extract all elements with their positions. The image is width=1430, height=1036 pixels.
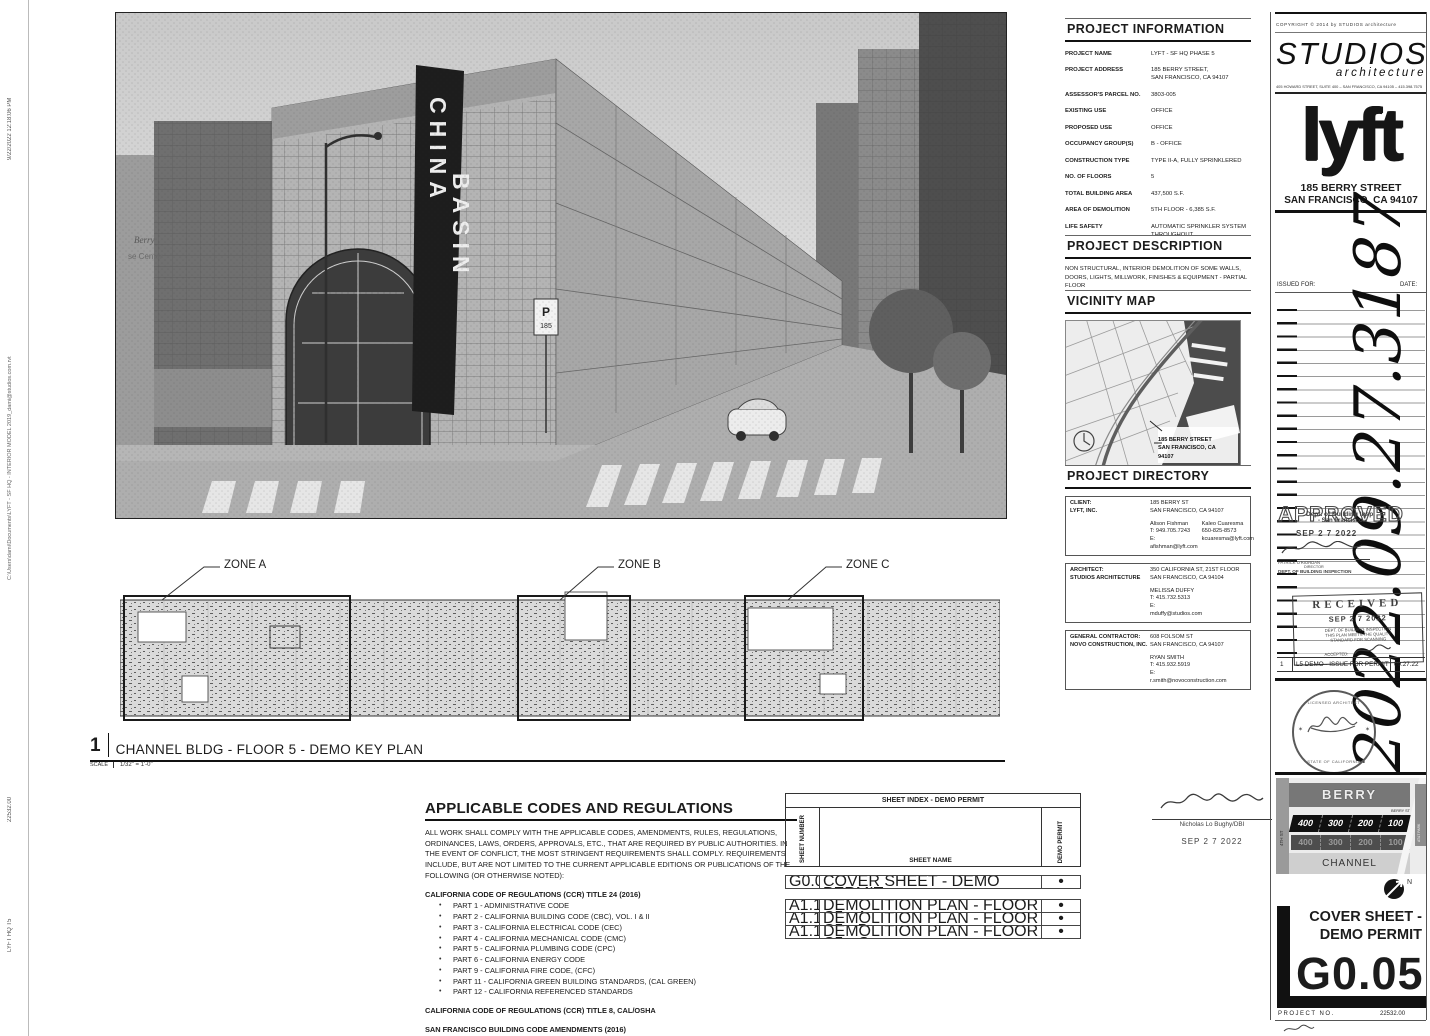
directory-firm: STUDIOS ARCHITECTURE [1070,575,1140,581]
cell-sheet-number: A1.15C [786,926,820,938]
key-plan-divider [108,733,109,757]
architect-seal: LICENSED ARCHITECT ✶ ✶ STATE OF CALIFORN… [1292,690,1376,774]
seal-top-text: LICENSED ARCHITECT [1294,700,1374,705]
info-label: PROPOSED USE [1065,125,1147,133]
info-value: B - OFFICE [1151,141,1251,149]
cell-sheet-name: DEMOLITION PLAN - FLOOR C5 - C [820,926,1042,938]
signature-scribble [1157,792,1267,814]
block-400: 400 [1289,815,1323,832]
block-300: 300 [1321,835,1351,850]
edge-divider [28,0,29,1036]
vicinity-map-section: VICINITY MAP [1065,290,1251,466]
approved-signature-scribble [1278,541,1368,557]
info-label: EXISTING USE [1065,108,1147,116]
seal-star-left: ✶ [1298,726,1303,733]
studios-logo: STUDIOS architecture [1276,38,1426,79]
site-photo: CHINA BASIN [115,12,1007,519]
sheet-index-row: A1.15B DEMOLITION PLAN - FLOOR C5 - B • [785,913,1081,926]
handwritten-permit-number: 2022.09.27.3187 [1342,228,1416,774]
info-value: 5 [1151,174,1251,182]
sheet-number: G0.05 [1296,948,1422,1000]
north-arrow: N [1382,876,1412,902]
park-label: AT&T PARK [1417,790,1421,842]
block-400: 400 [1291,835,1321,850]
project-description-title: PROJECT DESCRIPTION [1065,235,1251,259]
copyright-rule [1275,32,1426,33]
seal-signature-scribble [1305,716,1361,738]
cell-sheet-number: A1.15A [786,900,820,912]
issued-for-label: ISSUED FOR: [1277,282,1315,288]
info-label: CONSTRUCTION TYPE [1065,158,1147,166]
info-label: ASSESSOR'S PARCEL NO. [1065,92,1147,100]
sheet-index-row: G0.05 COVER SHEET - DEMO PERMIT • [785,875,1081,889]
sheet-index-header: SHEET INDEX - DEMO PERMIT SHEET NUMBER S… [785,793,1081,867]
title-block-top-rule [1275,12,1426,14]
list-item: PART 1 - ADMINISTRATIVE CODE [439,901,797,912]
edge-project-number: 22532.00 [7,762,13,822]
directory-contact: Alison Fishman T: 949.705.7243 E: afishm… [1150,521,1198,552]
list-item: PART 9 - CALIFORNIA FIRE CODE, (CFC) [439,966,797,977]
dbi-reviewer-date: SEP 2 7 2022 [1152,837,1272,846]
fourth-street-band: 4TH ST [1276,778,1289,874]
directory-address: 608 FOLSOM ST SAN FRANCISCO, CA 94107 [1150,634,1246,650]
info-label: TOTAL BUILDING AREA [1065,191,1147,199]
info-value: 437,500 S.F. [1151,191,1251,199]
cell-demo-dot: • [1042,913,1080,925]
cell-demo-dot: • [1042,926,1080,938]
vicinity-map-title: VICINITY MAP [1065,290,1251,314]
vicinity-map-callout: 185 BERRY STREET SAN FRANCISCO, CA 94107 [1158,436,1236,461]
info-value: OFFICE [1151,108,1251,116]
zone-a-label: ZONE A [224,559,266,571]
copyright-line: COPYRIGHT © 2014 by STUDIOS architecture [1276,22,1426,27]
info-value: 5TH FLOOR - 6,385 S.F. [1151,207,1251,215]
info-label: OCCUPANCY GROUP(S) [1065,141,1147,149]
project-description-section: PROJECT DESCRIPTION NON STRUCTURAL, INTE… [1065,235,1251,291]
col-sheet-name: SHEET NAME [820,808,1042,866]
project-information-section: PROJECT INFORMATION PROJECT NAMELYFT - S… [1065,18,1251,248]
edge-file-path: C:\Users\dami\Documents\LYFT - SF HQ - I… [7,250,13,580]
approved-date: SEP 2 7 2022 [1296,529,1408,538]
project-directory-section: PROJECT DIRECTORY CLIENT:LYFT, INC. 185 … [1065,465,1251,697]
info-value: OFFICE [1151,125,1251,133]
info-row: TOTAL BUILDING AREA437,500 S.F. [1065,191,1251,199]
col-demo-permit-label: DEMO PERMIT [1058,821,1064,863]
col-sheet-number: SHEET NUMBER [786,808,820,866]
title-block-left-border [1270,12,1271,1020]
list-item: PART 4 - CALIFORNIA MECHANICAL CODE (CMC… [439,934,797,945]
list-item: PART 3 - CALIFORNIA ELECTRICAL CODE (CEC… [439,923,797,934]
received-stamp: RECEIVED SEP 2 7 2022 DEPT. OF BUILDING … [1292,592,1424,665]
info-row: AREA OF DEMOLITION5TH FLOOR - 6,385 S.F. [1065,207,1251,215]
project-information-title: PROJECT INFORMATION [1065,18,1251,42]
info-label: PROJECT ADDRESS [1065,67,1147,83]
lyft-logo: lyft [1276,96,1426,174]
sheet-title: COVER SHEET - DEMO PERMIT [1296,908,1422,944]
title-block-right-border [1426,12,1427,1020]
fourth-street-label: 4TH ST [1279,806,1284,846]
ccr8-heading: CALIFORNIA CODE OF REGULATIONS (CCR) TIT… [425,1006,797,1017]
block-300: 300 [1319,815,1353,832]
cell-demo-dot: • [1042,876,1080,888]
zone-c-label: ZONE C [846,559,889,571]
info-row: EXISTING USEOFFICE [1065,108,1251,116]
sf-amendments-heading: SAN FRANCISCO BUILDING CODE AMENDMENTS (… [425,1025,797,1036]
list-item: PART 12 - CALIFORNIA REFERENCED STANDARD… [439,987,797,998]
revision-description: L5 DEMO - ISSUE FOR PERMIT [1293,658,1391,671]
studios-address: 405 HOWARD STREET, SUITE 400 – SAN FRANC… [1276,84,1426,89]
col-demo-permit: DEMO PERMIT [1042,808,1080,866]
ccr24-heading: CALIFORNIA CODE OF REGULATIONS (CCR) TIT… [425,890,797,901]
sheet-index: SHEET INDEX - DEMO PERMIT SHEET NUMBER S… [785,793,1081,939]
cell-sheet-name: DEMOLITION PLAN - FLOOR C5 - A [820,900,1042,912]
approved-stamp: APPROVED Dept. of Building Insp. - San F… [1278,503,1408,574]
received-signature-scribble [1353,644,1393,657]
directory-role: CLIENT: [1070,500,1091,506]
north-letter: N [1407,879,1412,886]
info-row: PROJECT NAMELYFT - SF HQ PHASE 5 [1065,51,1251,59]
directory-entry-client: CLIENT:LYFT, INC. 185 BERRY ST SAN FRANC… [1065,496,1251,556]
directory-contact [1206,588,1246,619]
info-value: LYFT - SF HQ PHASE 5 [1151,51,1251,59]
info-row: PROPOSED USEOFFICE [1065,125,1251,133]
directory-address: 185 BERRY ST SAN FRANCISCO, CA 94107 [1150,500,1246,516]
ccr24-list: PART 1 - ADMINISTRATIVE CODE PART 2 - CA… [439,901,797,998]
info-value: 185 BERRY STREET, SAN FRANCISCO, CA 9410… [1151,67,1251,83]
col-sheet-name-label: SHEET NAME [820,857,1041,864]
project-directory-title: PROJECT DIRECTORY [1065,465,1251,489]
directory-contact: MELISSA DUFFY T: 415.732.5313 E: mduffy@… [1150,588,1202,619]
dbi-reviewer-name: Nicholas Lo Bughy/DBI [1152,819,1272,828]
north-arrow-icon: N [1382,876,1412,902]
info-label: NO. OF FLOORS [1065,174,1147,182]
key-plan-title: CHANNEL BLDG - FLOOR 5 - DEMO KEY PLAN [116,742,424,757]
cell-sheet-number: A1.15B [786,913,820,925]
directory-role: ARCHITECT: [1070,567,1104,573]
approved-dept: DEPT. OF BUILDING INSPECTION [1278,569,1408,574]
received-date: SEP 2 7 2022 [1298,612,1418,624]
revision-bottom-rule [1275,678,1426,681]
dbi-reviewer-signature: Nicholas Lo Bughy/DBI SEP 2 7 2022 [1152,792,1272,846]
cell-sheet-name: COVER SHEET - DEMO PERMIT [820,876,1042,888]
project-no-value: 22532.00 [1380,1011,1405,1017]
project-description-body: NON STRUCTURAL, INTERIOR DEMOLITION OF S… [1065,265,1251,291]
seal-bottom-text: STATE OF CALIFORNIA [1294,759,1374,764]
directory-firm: LYFT, INC. [1070,508,1097,514]
list-item: PART 2 - CALIFORNIA BUILDING CODE (CBC),… [439,912,797,923]
location-key-map: 4TH ST BERRY BERRY ST 400 300 200 100 40… [1276,778,1426,874]
seal-bottom-rule [1275,772,1426,775]
list-item: PART 6 - CALIFORNIA ENERGY CODE [439,955,797,966]
edge-project-tag: LYFT HQ T5 [7,892,13,952]
codes-intro: ALL WORK SHALL COMPLY WITH THE APPLICABL… [425,828,797,882]
directory-role: GENERAL CONTRACTOR: [1070,634,1140,640]
seal-star-right: ✶ [1365,726,1370,733]
cell-sheet-name: DEMOLITION PLAN - FLOOR C5 - B [820,913,1042,925]
directory-contact [1231,655,1246,686]
info-row: OCCUPANCY GROUP(S)B - OFFICE [1065,141,1251,149]
block-200: 200 [1349,815,1383,832]
block-numbers-row-dark: 400 300 200 100 [1289,815,1412,832]
info-row: PROJECT ADDRESS185 BERRY STREET, SAN FRA… [1065,67,1251,83]
zone-b-label: ZONE B [618,559,661,571]
berry-street-band: BERRY [1289,783,1410,807]
info-label: PROJECT NAME [1065,51,1147,59]
list-item: PART 5 - CALIFORNIA PLUMBING CODE (CPC) [439,944,797,955]
directory-contact: RYAN SMITH T: 415.932.5919 E: r.smith@no… [1150,655,1227,686]
sheet-index-row: A1.15C DEMOLITION PLAN - FLOOR C5 - C • [785,926,1081,939]
codes-title: APPLICABLE CODES AND REGULATIONS [425,800,797,821]
received-word: RECEIVED [1297,596,1417,611]
berry-st-small-label: BERRY ST [1391,809,1410,813]
info-row: ASSESSOR'S PARCEL NO.3803-005 [1065,92,1251,100]
vicinity-map: 185 BERRY STREET SAN FRANCISCO, CA 94107 [1065,320,1241,466]
sheet-index-row: A1.15A DEMOLITION PLAN - FLOOR C5 - A • [785,899,1081,913]
block-numbers-row-gray: 400 300 200 100 [1291,835,1410,850]
applicable-codes-section: APPLICABLE CODES AND REGULATIONS ALL WOR… [425,800,797,1036]
cell-demo-dot: • [1042,900,1080,912]
cell-sheet-number: G0.05 [786,876,820,888]
info-value: 3803-005 [1151,92,1251,100]
park-block: AT&T PARK [1415,784,1426,846]
directory-firm: NOVO CONSTRUCTION, INC. [1070,642,1147,648]
revision-number: 1 [1277,658,1293,671]
info-row: CONSTRUCTION TYPETYPE II-A, FULLY SPRINK… [1065,158,1251,166]
directory-entry-architect: ARCHITECT:STUDIOS ARCHITECTURE 350 CALIF… [1065,563,1251,623]
sheet-index-title: SHEET INDEX - DEMO PERMIT [786,794,1080,808]
demo-key-plan: ZONE A ZONE B ZONE C [120,556,1000,724]
directory-address: 350 CALIFORNIA ST, 21ST FLOOR SAN FRANCI… [1150,567,1246,583]
block-200: 200 [1351,835,1381,850]
revision-date: 09.27.22 [1391,658,1425,671]
project-no-label: PROJECT NO. [1278,1011,1335,1017]
info-row: NO. OF FLOORS5 [1065,174,1251,182]
directory-entry-contractor: GENERAL CONTRACTOR:NOVO CONSTRUCTION, IN… [1065,630,1251,690]
info-value: TYPE II-A, FULLY SPRINKLERED [1151,158,1251,166]
footer-rule [1275,1020,1426,1021]
directory-contact: Kaleo Cuaresma 650-825-8573 kcuaresma@ly… [1202,521,1254,552]
key-plan-number: 1 [90,735,101,757]
col-sheet-number-label: SHEET NUMBER [800,815,806,863]
scale-value: 1/32" = 1'-0" [120,762,153,768]
key-plan-scale-row: SCALE 1/32" = 1'-0" [90,762,153,768]
drawing-sheet: 9/22/2022 12:18:06 PM C:\Users\dami\Docu… [0,0,1430,1036]
site-photo-illustration: CHINA BASIN [116,13,1006,518]
scale-label: SCALE [90,762,114,768]
key-plan-title-row: 1 CHANNEL BLDG - FLOOR 5 - DEMO KEY PLAN [90,733,1005,762]
edge-plot-timestamp: 9/22/2022 12:18:06 PM [7,30,13,160]
key-plan-drawing [120,556,1000,724]
list-item: PART 11 - CALIFORNIA GREEN BUILDING STAN… [439,977,797,988]
studios-wordmark: STUDIOS [1276,38,1426,69]
channel-street-band: CHANNEL [1289,853,1410,874]
sheet-title-left-bar [1277,906,1290,1002]
revision-row: 1 L5 DEMO - ISSUE FOR PERMIT 09.27.22 [1277,657,1425,672]
footer-initials-scribble [1282,1024,1316,1034]
info-label: AREA OF DEMOLITION [1065,207,1147,215]
